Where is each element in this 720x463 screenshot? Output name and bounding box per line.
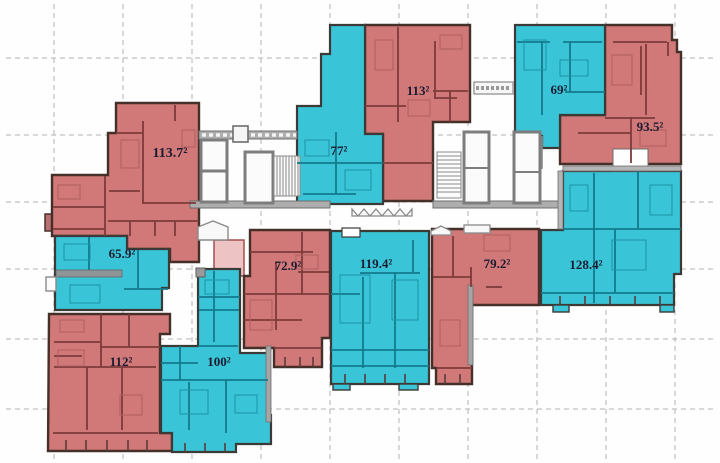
svg-text:93.5²: 93.5² bbox=[637, 119, 664, 134]
svg-text:69²: 69² bbox=[551, 82, 568, 97]
svg-text:79.2²: 79.2² bbox=[484, 256, 511, 271]
svg-text:113²: 113² bbox=[407, 83, 430, 98]
svg-text:72.9²: 72.9² bbox=[275, 258, 302, 273]
svg-text:113.7²: 113.7² bbox=[153, 146, 188, 161]
svg-text:77²: 77² bbox=[331, 143, 348, 158]
svg-text:119.4²: 119.4² bbox=[360, 256, 393, 271]
svg-text:65.9²: 65.9² bbox=[109, 246, 136, 261]
svg-text:112²: 112² bbox=[110, 354, 133, 369]
svg-text:128.4²: 128.4² bbox=[569, 257, 602, 272]
svg-text:100²: 100² bbox=[207, 354, 231, 369]
